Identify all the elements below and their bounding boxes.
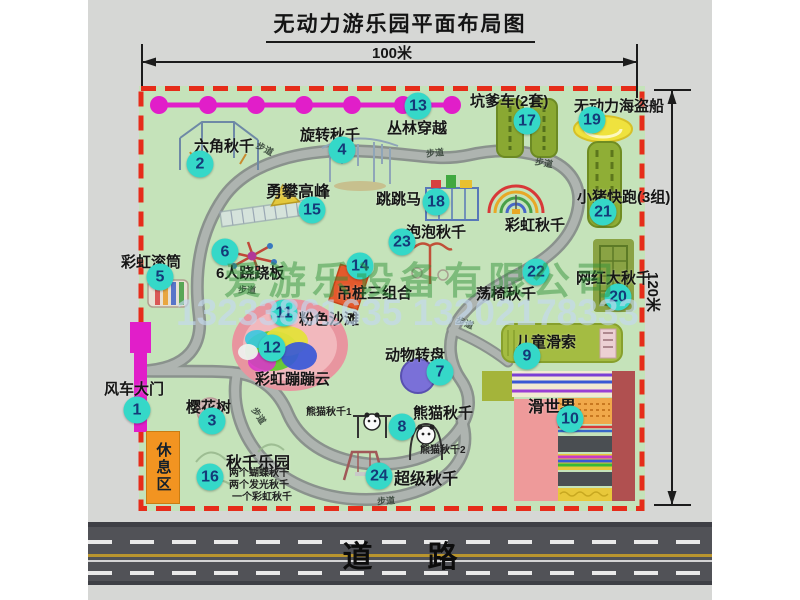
pirate-ship-icon bbox=[574, 116, 632, 142]
height-dimension bbox=[654, 90, 691, 505]
road: 道路 bbox=[88, 522, 712, 585]
pig-run-icon bbox=[588, 142, 621, 227]
rest-area: 休息区 bbox=[146, 431, 180, 504]
park-map-graphic bbox=[0, 0, 800, 600]
rest-area-label: 休息区 bbox=[153, 442, 174, 493]
road-label-wrap: 道路 bbox=[88, 527, 712, 581]
kids-zipline-icon bbox=[502, 324, 622, 362]
park-layout-poster: 无动力游乐园平面布局图 100米 120米 bbox=[0, 0, 800, 600]
rainbow-roller-icon bbox=[148, 280, 188, 307]
big-net-swing-icon bbox=[593, 239, 634, 312]
animal-carousel-icon bbox=[401, 359, 435, 393]
road-label: 道路 bbox=[343, 532, 513, 576]
pink-beach-icon bbox=[232, 299, 348, 391]
